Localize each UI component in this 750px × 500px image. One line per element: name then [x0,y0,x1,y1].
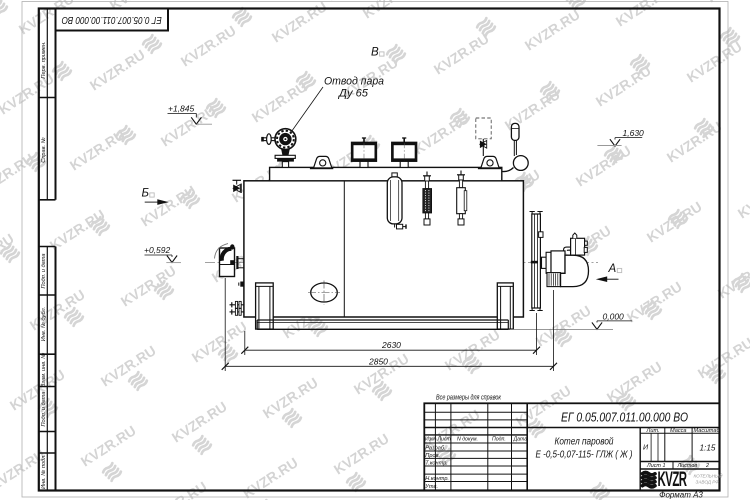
svg-text:Лит.: Лит. [646,428,660,434]
svg-text:В: В [371,47,379,59]
svg-text:Ду 65: Ду 65 [337,88,369,100]
svg-text:ЕГ 0.05.007.011.00.000 ВО: ЕГ 0.05.007.011.00.000 ВО [62,14,162,25]
svg-text:Масштаб: Масштаб [694,428,721,434]
svg-text:2630: 2630 [381,340,401,350]
svg-text:Б: Б [142,188,150,200]
svg-text:Н.контр.: Н.контр. [425,476,449,482]
svg-text:ЕГ 0.05.007.011.00.000 ВО: ЕГ 0.05.007.011.00.000 ВО [561,410,688,425]
svg-text:А: А [608,263,617,275]
svg-text:Подп. и дата: Подп. и дата [41,253,47,288]
svg-text:2: 2 [705,463,709,469]
svg-text:Е -0,5-0,07-115- ГЛЖ ( Ж ): Е -0,5-0,07-115- ГЛЖ ( Ж ) [536,450,633,461]
svg-text:Подп.: Подп. [492,437,506,443]
svg-text:Утв.: Утв. [424,484,438,490]
svg-text:Разраб.: Разраб. [425,445,445,451]
svg-text:KVZR: KVZR [658,468,687,491]
svg-text:КОТЕЛЬНЫЙ: КОТЕЛЬНЫЙ [694,472,724,479]
svg-text:+1,845: +1,845 [168,104,195,114]
svg-text:N докум.: N докум. [457,437,478,443]
svg-text:Т.контр.: Т.контр. [425,461,448,467]
svg-text:Подп. и дата: Подп. и дата [41,391,47,426]
svg-text:Дата: Дата [513,437,528,443]
svg-text:Котел паровой: Котел паровой [555,437,614,448]
svg-text:Формат А3: Формат А3 [659,491,703,500]
svg-text:+0,592: +0,592 [144,245,171,255]
svg-text:0,000: 0,000 [603,312,625,322]
svg-text:Инв. № подл.: Инв. № подл. [41,454,47,489]
svg-text:Инв. № дубл.: Инв. № дубл. [41,307,47,341]
svg-text:Изм: Изм [425,437,435,443]
svg-text:1,630: 1,630 [623,128,645,138]
svg-text:ЗАВОД РФ: ЗАВОД РФ [696,480,720,485]
svg-text:И: И [643,443,649,452]
svg-text:2850: 2850 [368,356,388,366]
svg-text:Перв. примен.: Перв. примен. [41,41,47,78]
svg-text:Лист: Лист [437,437,452,443]
svg-text:Взам. инв. №: Взам. инв. № [41,353,47,388]
svg-text:Отвод пара: Отвод пара [324,76,384,88]
svg-text:Справ. №: Справ. № [41,137,47,162]
svg-text:Масса: Масса [670,428,687,434]
svg-text:1:15: 1:15 [700,443,716,452]
svg-text:Все размеры для справок: Все размеры для справок [436,393,501,402]
svg-text:Пров.: Пров. [425,453,440,459]
